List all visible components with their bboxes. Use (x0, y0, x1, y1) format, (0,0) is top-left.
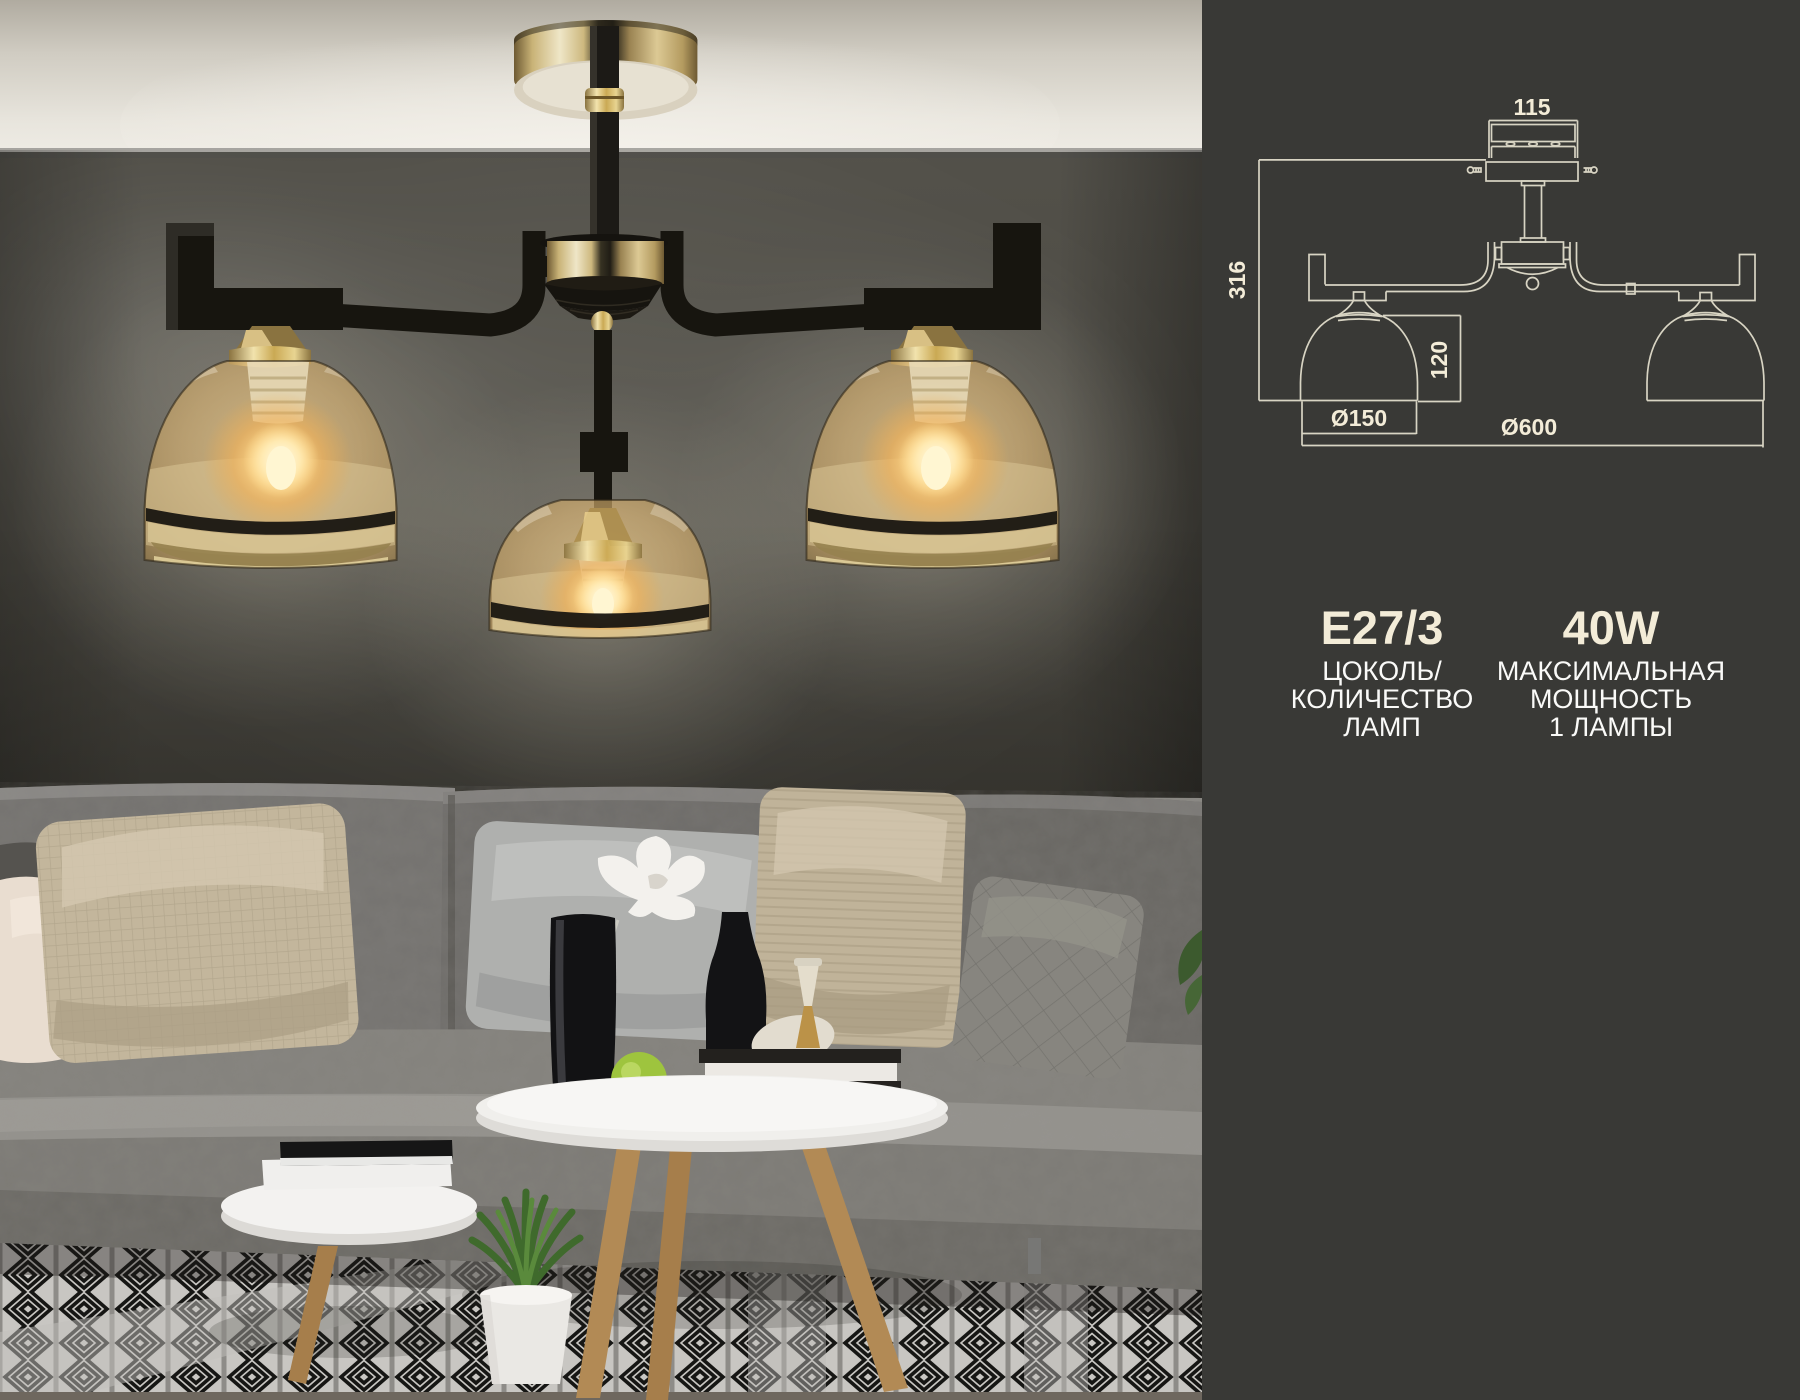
svg-text:МОЩНОСТЬ: МОЩНОСТЬ (1530, 684, 1692, 714)
svg-text:316: 316 (1224, 261, 1250, 299)
svg-text:Ø150: Ø150 (1331, 405, 1387, 431)
svg-text:ЛАМП: ЛАМП (1343, 712, 1421, 742)
svg-text:40W: 40W (1563, 601, 1660, 654)
svg-text:120: 120 (1426, 341, 1452, 379)
svg-text:ЦОКОЛЬ/: ЦОКОЛЬ/ (1322, 656, 1442, 686)
svg-text:1 ЛАМПЫ: 1 ЛАМПЫ (1549, 712, 1673, 742)
svg-text:МАКСИМАЛЬНАЯ: МАКСИМАЛЬНАЯ (1497, 656, 1725, 686)
svg-text:E27/3: E27/3 (1321, 601, 1444, 654)
svg-text:КОЛИЧЕСТВО: КОЛИЧЕСТВО (1291, 684, 1473, 714)
svg-text:115: 115 (1513, 94, 1550, 120)
svg-text:Ø600: Ø600 (1501, 414, 1557, 440)
